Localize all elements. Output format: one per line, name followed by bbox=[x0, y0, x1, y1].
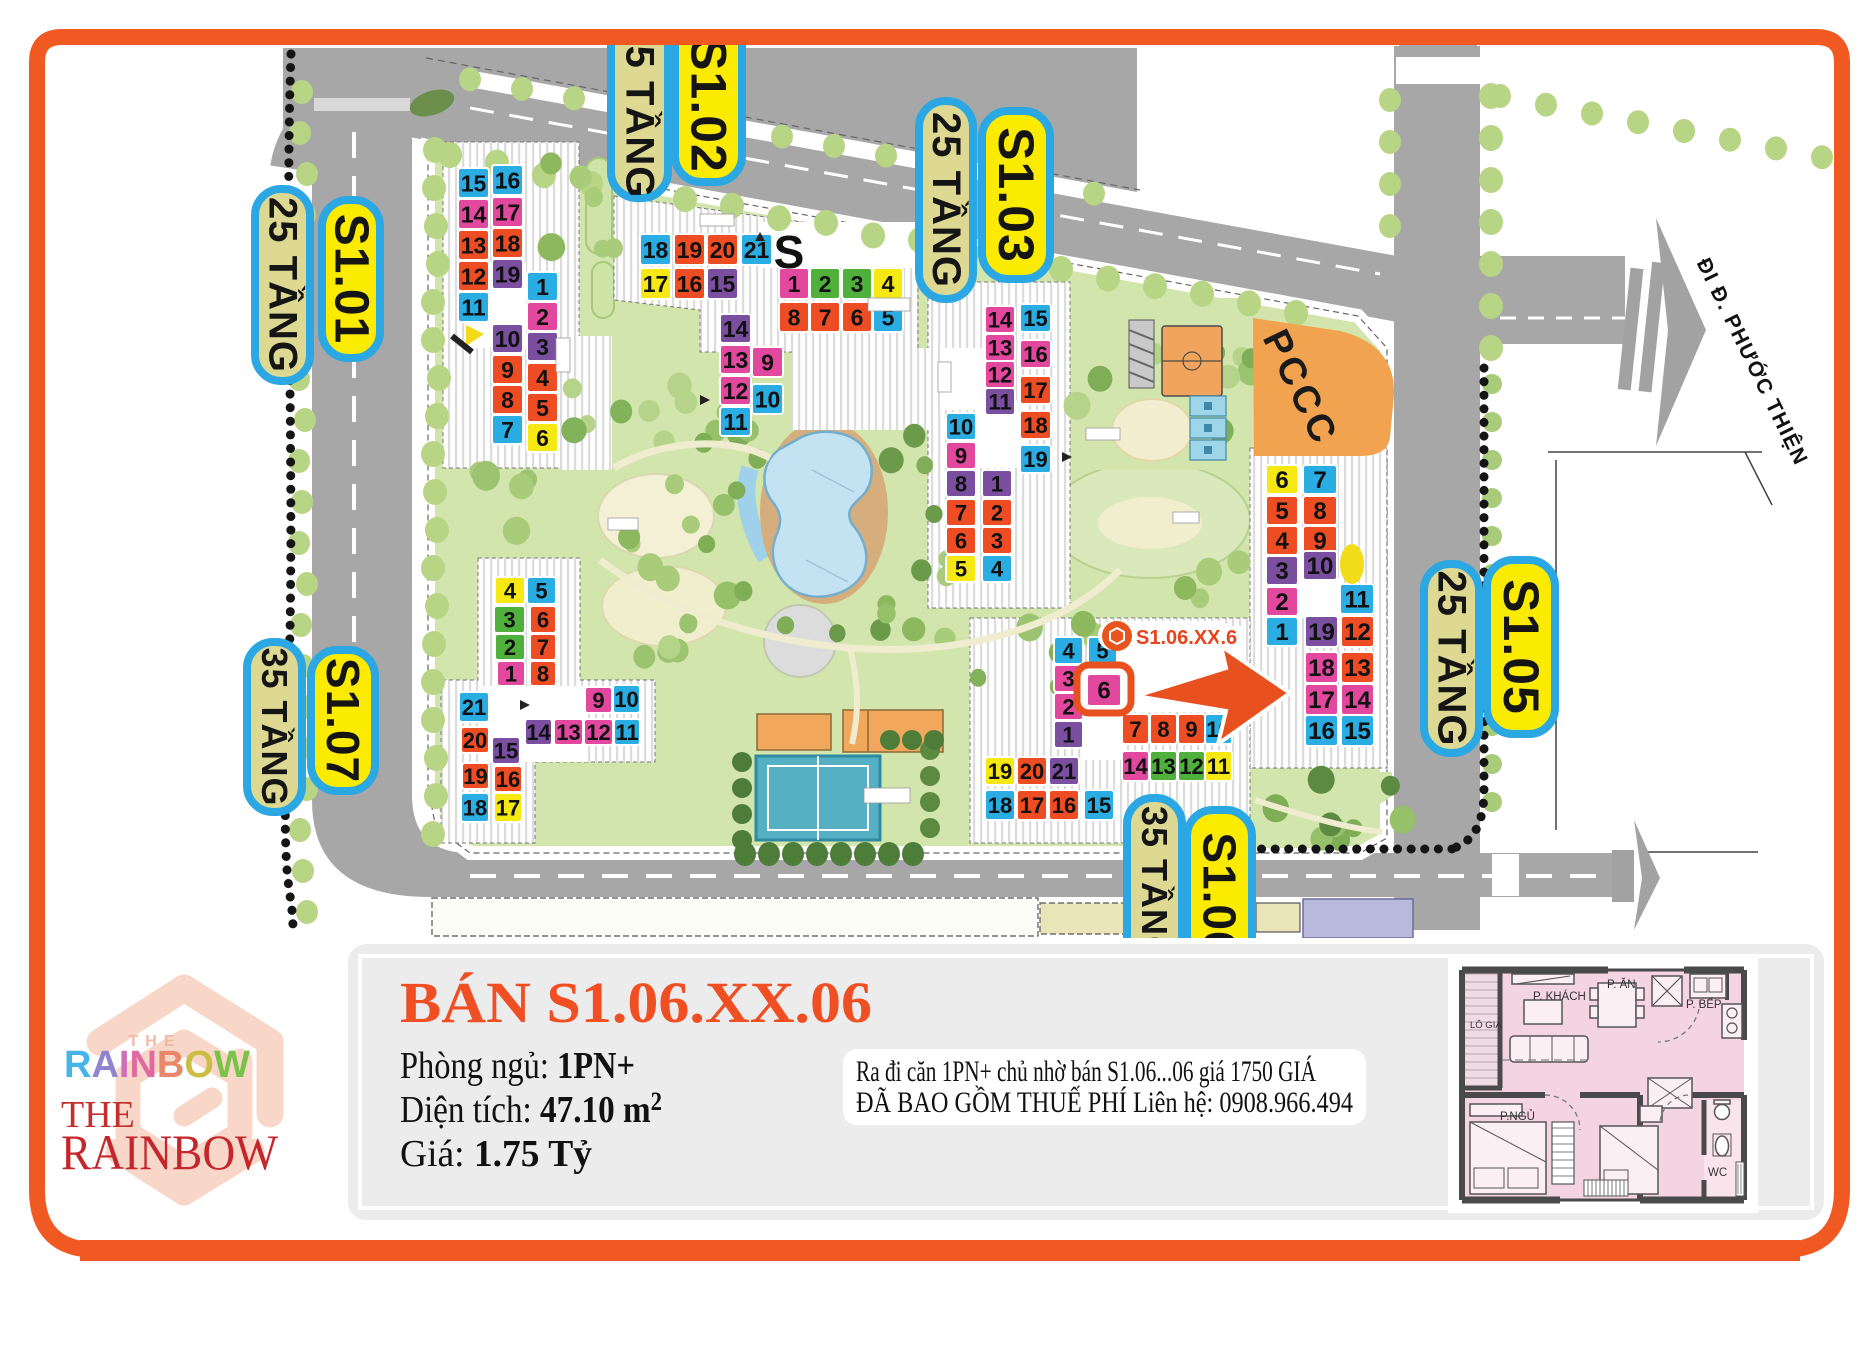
svg-text:P.NGỦ: P.NGỦ bbox=[1500, 1110, 1535, 1123]
svg-text:RAINBOW: RAINBOW bbox=[61, 1124, 279, 1180]
svg-text:S1.06: S1.06 bbox=[1194, 832, 1246, 957]
svg-text:Diện tích: 47.10 m2: Diện tích: 47.10 m2 bbox=[400, 1087, 662, 1131]
svg-text:6: 6 bbox=[536, 425, 549, 451]
svg-text:35 TẦNG: 35 TẦNG bbox=[1134, 806, 1175, 965]
svg-text:9: 9 bbox=[1185, 717, 1197, 742]
svg-text:19: 19 bbox=[677, 237, 703, 263]
svg-text:6: 6 bbox=[955, 528, 967, 553]
svg-text:14: 14 bbox=[723, 316, 749, 342]
svg-text:4: 4 bbox=[1062, 638, 1075, 663]
svg-text:8: 8 bbox=[1313, 498, 1326, 525]
svg-text:3: 3 bbox=[1275, 558, 1288, 585]
svg-text:10: 10 bbox=[614, 687, 638, 712]
svg-text:S1.05: S1.05 bbox=[1493, 579, 1549, 715]
svg-text:1: 1 bbox=[536, 274, 549, 300]
svg-text:15: 15 bbox=[494, 738, 518, 763]
svg-text:S1.01: S1.01 bbox=[325, 214, 378, 344]
svg-text:1: 1 bbox=[991, 471, 1003, 496]
svg-text:4: 4 bbox=[536, 365, 549, 391]
svg-text:17: 17 bbox=[1020, 793, 1044, 818]
svg-text:2: 2 bbox=[1275, 589, 1288, 616]
svg-text:15: 15 bbox=[1087, 793, 1111, 818]
svg-text:1: 1 bbox=[1062, 722, 1074, 747]
svg-text:9: 9 bbox=[501, 357, 514, 383]
svg-text:ĐÃ BAO GỒM THUẾ PHÍ Liên hệ: 0: ĐÃ BAO GỒM THUẾ PHÍ Liên hệ: 0908.966.49… bbox=[856, 1085, 1353, 1119]
svg-text:16: 16 bbox=[1023, 342, 1047, 367]
svg-text:6: 6 bbox=[1097, 678, 1110, 705]
svg-text:11: 11 bbox=[1207, 754, 1230, 779]
svg-text:12: 12 bbox=[723, 378, 749, 404]
svg-text:7: 7 bbox=[501, 417, 514, 443]
svg-text:8: 8 bbox=[788, 304, 801, 330]
svg-text:18: 18 bbox=[463, 795, 487, 820]
svg-text:8: 8 bbox=[537, 661, 549, 686]
svg-text:12: 12 bbox=[1179, 754, 1203, 779]
svg-text:16: 16 bbox=[1308, 718, 1335, 745]
svg-text:S1.07: S1.07 bbox=[317, 658, 369, 783]
svg-text:7: 7 bbox=[819, 304, 832, 330]
svg-text:10: 10 bbox=[495, 326, 521, 352]
svg-text:8: 8 bbox=[501, 387, 514, 413]
svg-text:18: 18 bbox=[1308, 655, 1335, 682]
svg-text:11: 11 bbox=[988, 389, 1011, 414]
svg-text:7: 7 bbox=[1313, 467, 1326, 494]
svg-text:16: 16 bbox=[1052, 793, 1076, 818]
svg-text:2: 2 bbox=[536, 304, 549, 330]
svg-text:3: 3 bbox=[536, 334, 549, 360]
svg-text:21: 21 bbox=[462, 695, 486, 720]
svg-text:17: 17 bbox=[643, 271, 669, 297]
svg-text:12: 12 bbox=[461, 263, 487, 289]
svg-text:5: 5 bbox=[536, 395, 549, 421]
svg-text:25 TẦNG: 25 TẦNG bbox=[261, 197, 307, 373]
svg-text:20: 20 bbox=[463, 728, 487, 753]
svg-text:2: 2 bbox=[991, 500, 1003, 525]
svg-text:13: 13 bbox=[988, 335, 1012, 360]
svg-text:19: 19 bbox=[1023, 447, 1047, 472]
svg-text:3: 3 bbox=[1062, 666, 1074, 691]
svg-text:15: 15 bbox=[1344, 718, 1371, 745]
svg-text:17: 17 bbox=[496, 795, 520, 820]
svg-text:12: 12 bbox=[988, 362, 1012, 387]
svg-text:BÁN S1.06.XX.06: BÁN S1.06.XX.06 bbox=[400, 970, 872, 1035]
svg-text:13: 13 bbox=[1151, 754, 1175, 779]
svg-text:P. KHÁCH: P. KHÁCH bbox=[1533, 990, 1586, 1003]
svg-text:14: 14 bbox=[461, 201, 487, 227]
svg-text:15: 15 bbox=[1023, 306, 1047, 331]
svg-text:15: 15 bbox=[710, 271, 736, 297]
svg-text:35 TẦNG: 35 TẦNG bbox=[254, 647, 295, 806]
svg-text:2: 2 bbox=[1062, 694, 1074, 719]
svg-text:17: 17 bbox=[1023, 378, 1047, 403]
svg-text:7: 7 bbox=[1129, 717, 1141, 742]
svg-text:21: 21 bbox=[1052, 759, 1076, 784]
svg-text:4: 4 bbox=[882, 271, 895, 297]
svg-text:11: 11 bbox=[461, 294, 486, 320]
svg-text:5: 5 bbox=[535, 578, 547, 603]
svg-text:8: 8 bbox=[955, 471, 967, 496]
svg-text:20: 20 bbox=[710, 237, 736, 263]
svg-text:16: 16 bbox=[495, 167, 521, 193]
svg-text:13: 13 bbox=[723, 347, 749, 373]
svg-text:17: 17 bbox=[495, 199, 521, 225]
svg-text:25 TẦNG: 25 TẦNG bbox=[1430, 571, 1476, 747]
svg-text:10: 10 bbox=[1307, 553, 1334, 580]
svg-text:5: 5 bbox=[1275, 498, 1288, 525]
svg-text:6: 6 bbox=[1275, 467, 1288, 494]
svg-text:11: 11 bbox=[723, 409, 748, 435]
svg-text:19: 19 bbox=[1308, 619, 1335, 646]
svg-text:7: 7 bbox=[955, 500, 967, 525]
svg-text:16: 16 bbox=[496, 767, 520, 792]
svg-text:10: 10 bbox=[949, 414, 973, 439]
svg-text:18: 18 bbox=[643, 237, 669, 263]
svg-text:14: 14 bbox=[1123, 754, 1148, 779]
svg-text:12: 12 bbox=[1344, 619, 1371, 646]
svg-text:6: 6 bbox=[537, 607, 549, 632]
svg-text:19: 19 bbox=[463, 764, 487, 789]
svg-text:1: 1 bbox=[505, 661, 517, 686]
svg-text:18: 18 bbox=[1023, 413, 1047, 438]
svg-text:11: 11 bbox=[1344, 587, 1369, 614]
svg-text:15: 15 bbox=[461, 170, 487, 196]
svg-text:S1.03: S1.03 bbox=[988, 127, 1044, 263]
svg-text:WC: WC bbox=[1708, 1167, 1727, 1179]
svg-text:P. ĂN: P. ĂN bbox=[1607, 978, 1636, 991]
svg-text:14: 14 bbox=[526, 720, 551, 745]
svg-text:4: 4 bbox=[1275, 528, 1289, 555]
svg-text:10: 10 bbox=[755, 386, 781, 412]
svg-text:LÔ GIA: LÔ GIA bbox=[1470, 1020, 1502, 1031]
svg-text:18: 18 bbox=[495, 230, 521, 256]
svg-text:19: 19 bbox=[988, 759, 1012, 784]
svg-text:9: 9 bbox=[761, 349, 774, 375]
svg-text:RAINBOW: RAINBOW bbox=[64, 1044, 250, 1086]
svg-text:2: 2 bbox=[819, 271, 832, 297]
svg-text:17: 17 bbox=[1308, 687, 1335, 714]
svg-text:7: 7 bbox=[537, 635, 549, 660]
svg-text:5: 5 bbox=[955, 556, 967, 581]
svg-text:P. BẾP: P. BẾP bbox=[1686, 998, 1722, 1011]
svg-text:14: 14 bbox=[1344, 687, 1371, 714]
svg-text:S1.02: S1.02 bbox=[681, 37, 737, 173]
svg-text:1: 1 bbox=[1275, 619, 1288, 646]
svg-text:20: 20 bbox=[1020, 759, 1044, 784]
svg-text:5 TẦNG: 5 TẦNG bbox=[618, 46, 664, 199]
svg-text:Phòng ngủ: 1PN+: Phòng ngủ: 1PN+ bbox=[400, 1045, 635, 1087]
svg-text:4: 4 bbox=[991, 556, 1004, 581]
svg-text:2: 2 bbox=[504, 635, 516, 660]
svg-text:8: 8 bbox=[1157, 717, 1169, 742]
svg-text:12: 12 bbox=[586, 720, 610, 745]
svg-text:19: 19 bbox=[495, 261, 521, 287]
svg-text:9: 9 bbox=[955, 443, 967, 468]
svg-text:4: 4 bbox=[504, 578, 517, 603]
svg-text:13: 13 bbox=[556, 720, 580, 745]
svg-text:3: 3 bbox=[991, 528, 1003, 553]
svg-text:14: 14 bbox=[988, 307, 1013, 332]
svg-text:Giá: 1.75 Tỷ: Giá: 1.75 Tỷ bbox=[400, 1133, 592, 1175]
svg-text:Ra đi căn 1PN+ chủ nhờ bán S1.: Ra đi căn 1PN+ chủ nhờ bán S1.06...06 gi… bbox=[856, 1055, 1316, 1088]
svg-text:13: 13 bbox=[1344, 655, 1371, 682]
svg-text:9: 9 bbox=[592, 688, 604, 713]
svg-text:ĐI Đ. PHƯỚC THIỆN: ĐI Đ. PHƯỚC THIỆN bbox=[1692, 254, 1813, 469]
svg-text:S: S bbox=[774, 226, 805, 278]
svg-text:3: 3 bbox=[503, 607, 515, 632]
svg-text:13: 13 bbox=[461, 232, 487, 258]
svg-text:11: 11 bbox=[615, 720, 638, 745]
svg-text:3: 3 bbox=[851, 271, 864, 297]
svg-text:18: 18 bbox=[988, 793, 1012, 818]
svg-text:16: 16 bbox=[677, 271, 703, 297]
svg-text:25 TẦNG: 25 TẦNG bbox=[924, 112, 970, 288]
svg-text:6: 6 bbox=[851, 304, 864, 330]
